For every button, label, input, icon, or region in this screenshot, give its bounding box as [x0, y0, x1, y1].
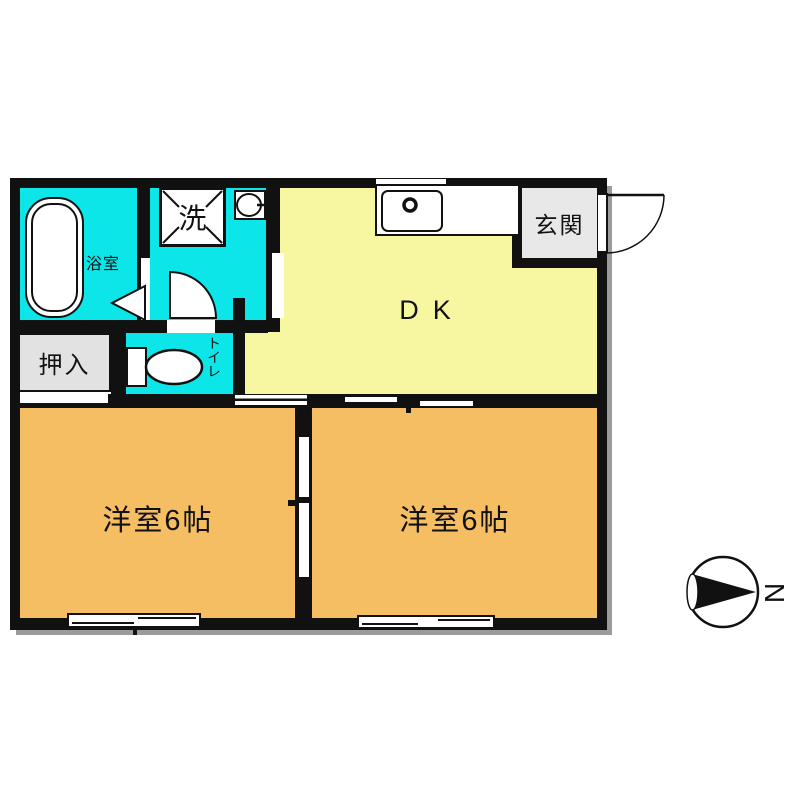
bedroom-right-label: 洋室6帖 — [312, 497, 598, 539]
bath-label: 浴室 — [86, 250, 120, 274]
washroom-door-swing-icon — [170, 272, 216, 318]
kitchen-faucet-icon — [404, 199, 416, 211]
north-label: N — [757, 576, 791, 610]
toilet-bowl-icon — [146, 350, 202, 384]
bedroom-left-label: 洋室6帖 — [20, 497, 296, 539]
floor-plan: 玄関 押入 — [0, 0, 800, 800]
entrance-door-arc — [606, 195, 664, 253]
toilet-label: トイレ — [204, 336, 224, 396]
dk-label: DK — [330, 295, 520, 326]
floorplan-symbols-layer — [0, 0, 800, 800]
compass-icon — [687, 557, 758, 627]
washer-label: 洗 — [159, 188, 226, 246]
bath-door-icon — [112, 286, 145, 320]
